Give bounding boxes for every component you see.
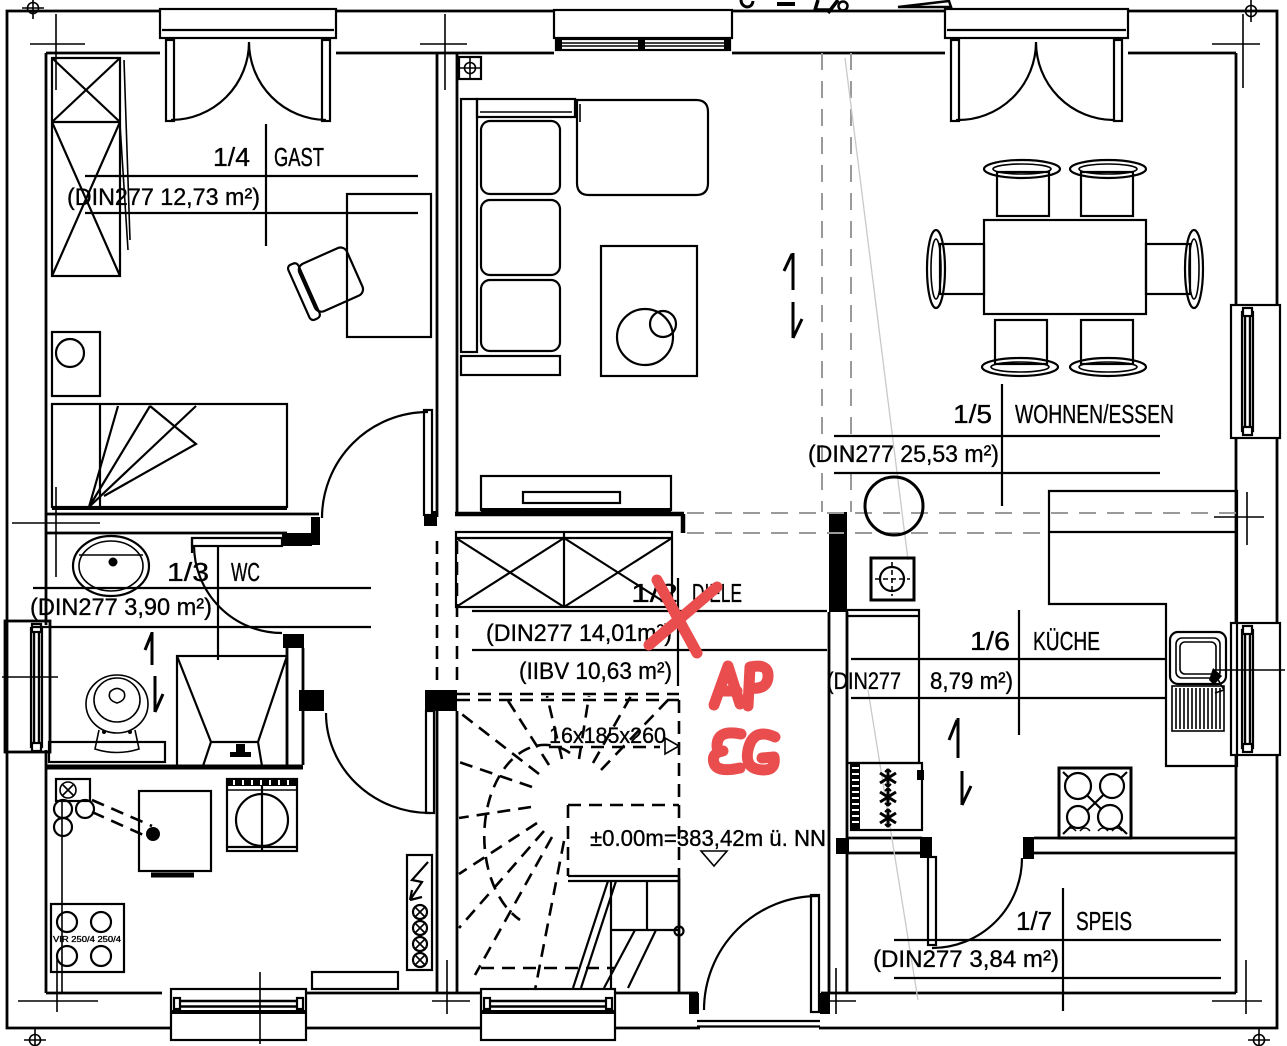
svg-text:±0.00m=383,42m ü. NN: ±0.00m=383,42m ü. NN — [590, 825, 826, 851]
svg-text:1/7: 1/7 — [1016, 906, 1052, 936]
svg-text:(IIBV 10,63 m²): (IIBV 10,63 m²) — [519, 658, 672, 685]
svg-text:1/5: 1/5 — [953, 399, 992, 429]
svg-text:VIR 250/4 250/4: VIR 250/4 250/4 — [53, 935, 122, 944]
svg-text:(DIN277 3,84 m²): (DIN277 3,84 m²) — [873, 946, 1059, 973]
svg-text:(DIN277: (DIN277 — [827, 668, 901, 695]
svg-text:1/3: 1/3 — [167, 557, 209, 587]
svg-text:WOHNEN/ESSEN: WOHNEN/ESSEN — [1015, 399, 1174, 429]
svg-text:(DIN277 12,73 m²): (DIN277 12,73 m²) — [67, 184, 260, 211]
svg-text:WC: WC — [231, 557, 260, 587]
svg-text:1/4: 1/4 — [213, 142, 250, 172]
svg-text:SPEIS: SPEIS — [1076, 906, 1132, 936]
svg-text:(DIN277 25,53 m²): (DIN277 25,53 m²) — [808, 441, 999, 468]
svg-text:16x185x260: 16x185x260 — [549, 723, 666, 748]
svg-text:8,79 m²): 8,79 m²) — [930, 668, 1013, 695]
svg-text:GAST: GAST — [274, 142, 324, 172]
svg-text:KÜCHE: KÜCHE — [1033, 626, 1100, 656]
svg-text:(DIN277 3,90 m²): (DIN277 3,90 m²) — [30, 594, 212, 621]
svg-text:1/6: 1/6 — [970, 626, 1010, 656]
